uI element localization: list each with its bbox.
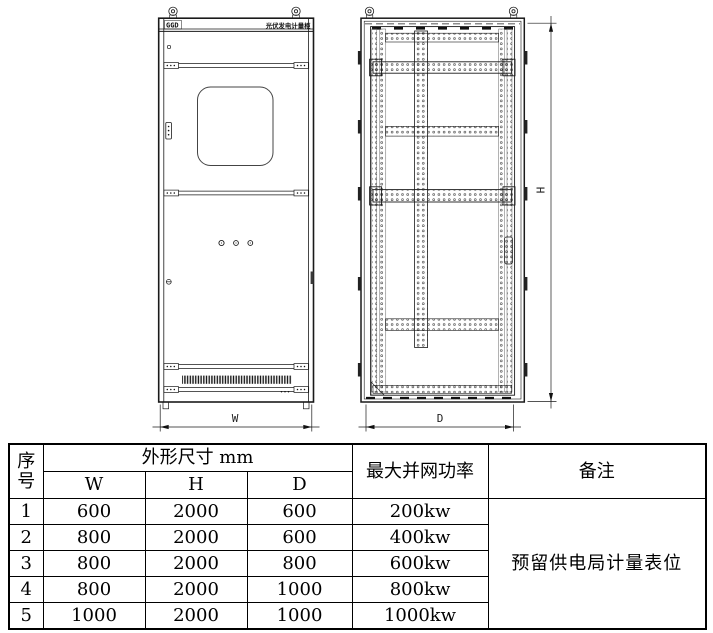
horizontal-mounting-rails: [370, 33, 515, 393]
door-lock-icon: [167, 45, 170, 48]
cabinet-drawing-sheet: GGD 光伏发电计量柜: [0, 0, 713, 633]
cell-h: 2000: [145, 525, 247, 551]
table-row: 1 600 2000 600 200kw 预留供电局计量表位: [9, 499, 706, 525]
cabinet-model-label: GGD: [166, 22, 179, 30]
cabinet-nameplate-label: 光伏发电计量柜: [265, 21, 311, 30]
cell-w: 1000: [43, 603, 145, 630]
width-dimension-label: W: [232, 412, 239, 425]
header-dimensions-group: 外形尺寸 mm: [43, 444, 352, 472]
cell-h: 2000: [145, 577, 247, 603]
cell-remarks: 预留供电局计量表位: [488, 499, 706, 630]
lower-door-lock-icon: [166, 279, 172, 284]
indicator-lights: [219, 240, 253, 245]
internal-view: H D: [358, 7, 557, 431]
cell-no: 3: [9, 551, 43, 577]
lifting-eye-icon: [365, 7, 517, 18]
lifting-eye-icon: [169, 7, 300, 18]
cell-no: 2: [9, 525, 43, 551]
header-index-line2: 号: [17, 471, 35, 492]
cell-d: 600: [247, 499, 352, 525]
depth-dimension-label: D: [437, 412, 444, 425]
cell-d: 1000: [247, 603, 352, 630]
cell-no: 4: [9, 577, 43, 603]
front-cabinet-outline: [159, 18, 314, 402]
front-view: GGD 光伏发电计量柜: [153, 7, 320, 431]
technical-drawing: GGD 光伏发电计量柜: [0, 0, 713, 443]
header-col-w: W: [43, 472, 145, 499]
header-index-line1: 序: [17, 451, 35, 472]
cell-d: 600: [247, 525, 352, 551]
cell-power: 400kw: [352, 525, 488, 551]
header-remarks: 备注: [488, 444, 706, 499]
cell-power: 800kw: [352, 577, 488, 603]
height-dimension-label: H: [535, 187, 548, 194]
header-index: 序 号: [9, 444, 43, 499]
cell-power: 1000kw: [352, 603, 488, 630]
cell-d: 800: [247, 551, 352, 577]
cell-no: 5: [9, 603, 43, 630]
spec-table: 序 号 外形尺寸 mm 最大并网功率 备注 W H D 1 600 2000 6…: [8, 443, 707, 630]
header-col-d: D: [247, 472, 352, 499]
header-row-1: 序 号 外形尺寸 mm 最大并网功率 备注: [9, 444, 706, 472]
vertical-mounting-rails: [372, 29, 512, 392]
cabinet-feet: [163, 402, 309, 409]
cell-w: 800: [43, 525, 145, 551]
cell-w: 600: [43, 499, 145, 525]
header-col-h: H: [145, 472, 247, 499]
cell-power: 600kw: [352, 551, 488, 577]
depth-dimension: D: [359, 405, 522, 432]
cell-w: 800: [43, 551, 145, 577]
cell-h: 2000: [145, 603, 247, 630]
vent-grille: [182, 376, 292, 384]
cell-h: 2000: [145, 551, 247, 577]
spec-table-container: 序 号 外形尺寸 mm 最大并网功率 备注 W H D 1 600 2000 6…: [8, 443, 707, 630]
viewing-window: [198, 87, 274, 166]
header-max-grid-power: 最大并网功率: [352, 444, 488, 499]
cell-no: 1: [9, 499, 43, 525]
door-handle-icon: [166, 123, 172, 140]
height-dimension: H: [528, 16, 557, 409]
cell-power: 200kw: [352, 499, 488, 525]
cell-d: 1000: [247, 577, 352, 603]
width-dimension: W: [153, 405, 320, 432]
cell-w: 800: [43, 577, 145, 603]
cell-h: 2000: [145, 499, 247, 525]
door-hinge: [311, 272, 314, 285]
